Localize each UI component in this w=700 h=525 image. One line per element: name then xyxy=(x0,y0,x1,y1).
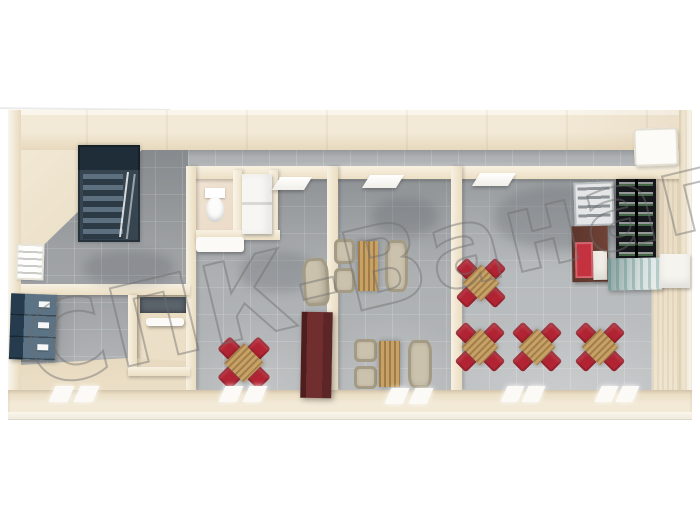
window-light xyxy=(500,386,545,402)
locker-cabinet xyxy=(9,293,57,361)
booth-dining-set xyxy=(354,338,432,390)
toilet xyxy=(204,188,226,222)
floorplan-render: СПК-Ванап xyxy=(0,0,700,525)
threshold-part xyxy=(522,386,546,402)
left-wall-window xyxy=(15,244,44,281)
floor-shadow xyxy=(372,198,438,236)
threshold-part xyxy=(616,386,640,402)
floor-shadow xyxy=(84,250,174,286)
window-light xyxy=(384,388,433,404)
open-door xyxy=(362,175,404,188)
dining-table-red xyxy=(560,307,639,386)
sink-cabinet-part xyxy=(242,202,272,205)
threshold-part xyxy=(73,386,99,402)
threshold-part xyxy=(594,386,618,402)
booth-dining-set xyxy=(334,238,408,294)
lockers-part xyxy=(9,293,57,361)
lockers-part xyxy=(38,301,49,307)
furniture-layer xyxy=(0,0,700,525)
threshold-part xyxy=(242,386,268,402)
threshold-part xyxy=(500,386,524,402)
dinette-part xyxy=(385,240,408,293)
vestibule-shelf xyxy=(146,318,184,326)
threshold-part xyxy=(408,388,434,404)
staircase xyxy=(78,145,140,242)
vestibule-mat xyxy=(140,297,186,313)
dinette-part xyxy=(358,241,378,291)
dinette-part xyxy=(354,366,377,389)
open-door xyxy=(272,177,312,190)
dinette-part xyxy=(379,341,400,388)
window-light xyxy=(594,386,639,402)
dinette-part xyxy=(334,239,355,264)
dinette-part xyxy=(334,268,355,293)
shelf-dark-part xyxy=(619,182,653,259)
lockers-part xyxy=(38,323,49,329)
shelf-brown-part xyxy=(593,250,608,279)
dinette-part xyxy=(408,340,432,389)
fridge-display-part xyxy=(577,187,610,222)
storage-shelf xyxy=(572,226,609,283)
wall-panel xyxy=(633,127,678,167)
open-door xyxy=(472,173,516,186)
drinks-display xyxy=(573,181,615,226)
dinette-part xyxy=(354,339,377,362)
threshold-part xyxy=(48,386,74,402)
window-light xyxy=(48,386,99,402)
threshold-part xyxy=(384,388,410,404)
lockers-part xyxy=(37,344,48,350)
shelf-brown-part xyxy=(575,242,594,278)
tall-cabinet xyxy=(300,312,332,399)
armchair xyxy=(302,257,330,306)
counter-block xyxy=(660,254,690,288)
window-light xyxy=(218,386,267,402)
retail-shelf xyxy=(616,179,656,263)
threshold-part xyxy=(218,386,244,402)
stairs-part xyxy=(83,174,123,239)
washbasin-cabinet xyxy=(242,174,272,234)
washroom-counter xyxy=(196,237,244,252)
serving-counter xyxy=(608,258,663,291)
toilet-part xyxy=(206,197,225,222)
